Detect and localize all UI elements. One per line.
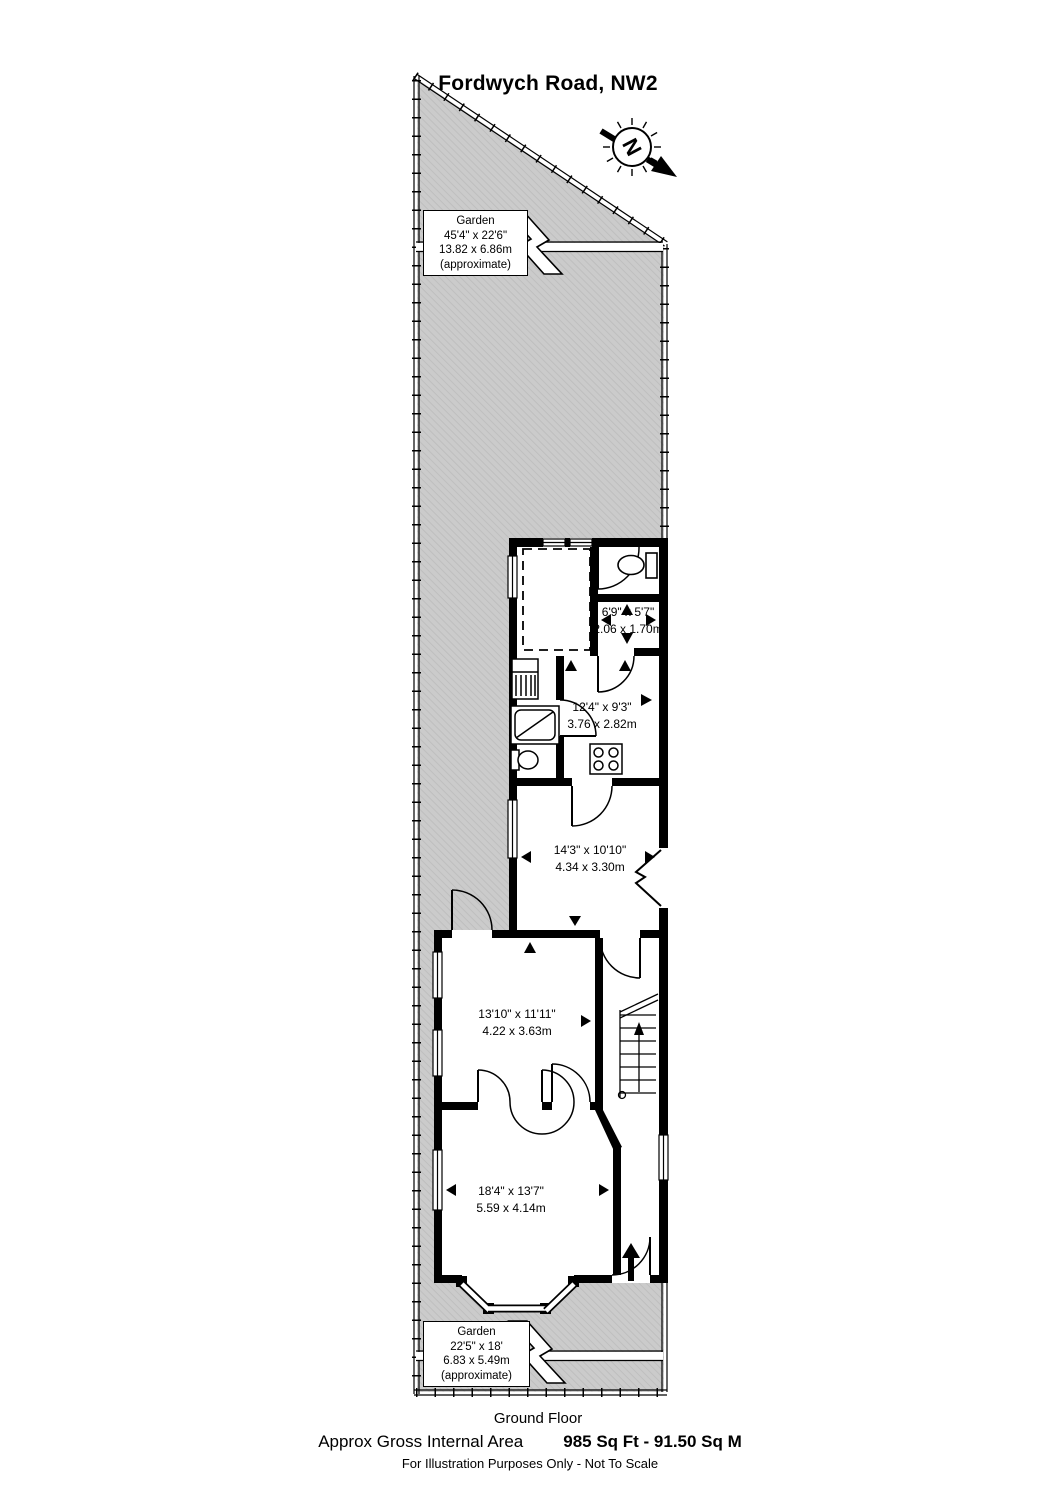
room-imperial: 6'9" x 5'7" (553, 604, 703, 621)
garden-note: (approximate) (426, 258, 525, 273)
room-label-reception-rear: 14'3" x 10'10" 4.34 x 3.30m (515, 842, 665, 875)
room-metric: 2.06 x 1.70m (553, 621, 703, 638)
north-compass-icon: N (601, 118, 677, 177)
garden-metric: 6.83 x 5.49m (426, 1354, 527, 1369)
garden-note: (approximate) (426, 1369, 527, 1384)
garden-name: Garden (426, 1325, 527, 1340)
room-metric: 3.76 x 2.82m (527, 716, 677, 733)
garden-imperial: 45'4" x 22'6" (426, 229, 525, 244)
floor-name: Ground Floor (438, 1410, 638, 1427)
rear-garden-label: Garden 45'4" x 22'6" 13.82 x 6.86m (appr… (423, 210, 528, 276)
room-metric: 4.34 x 3.30m (515, 859, 665, 876)
room-label-reception-middle: 13'10" x 11'11" 4.22 x 3.63m (442, 1006, 592, 1039)
footer-area-line: Approx Gross Internal Area 985 Sq Ft - 9… (0, 1432, 1060, 1452)
area-value: 985 Sq Ft - 91.50 Sq M (563, 1432, 742, 1452)
floorplan-drawing: N (0, 0, 1060, 1500)
garden-imperial: 22'5" x 18' (426, 1340, 527, 1355)
hob-icon (590, 744, 622, 774)
room-label-kitchen: 12'4" x 9'3" 3.76 x 2.82m (527, 699, 677, 732)
room-metric: 4.22 x 3.63m (442, 1023, 592, 1040)
garden-name: Garden (426, 214, 525, 229)
room-imperial: 14'3" x 10'10" (515, 842, 665, 859)
floorplan-page: N Fordwych Road, NW2 Garden 45'4" x 22'6… (0, 0, 1060, 1500)
garden-metric: 13.82 x 6.86m (426, 243, 525, 258)
room-imperial: 18'4" x 13'7" (436, 1183, 586, 1200)
room-label-rear-room: 6'9" x 5'7" 2.06 x 1.70m (553, 604, 703, 637)
sink-drainer-icon (512, 659, 538, 699)
bathroom-toilet-icon (511, 750, 538, 770)
front-garden-label: Garden 22'5" x 18' 6.83 x 5.49m (approxi… (423, 1321, 530, 1387)
page-title: Fordwych Road, NW2 (398, 72, 698, 96)
room-imperial: 12'4" x 9'3" (527, 699, 677, 716)
room-metric: 5.59 x 4.14m (436, 1200, 586, 1217)
room-label-reception-front: 18'4" x 13'7" 5.59 x 4.14m (436, 1183, 586, 1216)
room-imperial: 13'10" x 11'11" (442, 1006, 592, 1023)
disclaimer-text: For Illustration Purposes Only - Not To … (0, 1456, 1060, 1471)
area-label: Approx Gross Internal Area (318, 1432, 523, 1452)
